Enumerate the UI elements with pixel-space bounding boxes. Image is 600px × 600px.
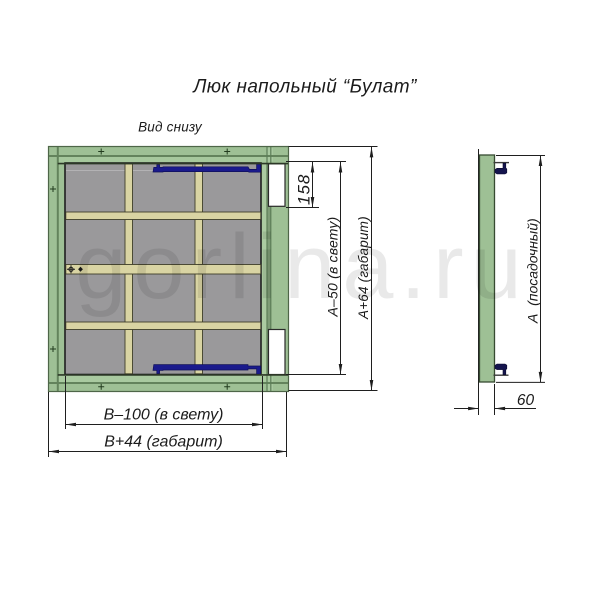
svg-text:В+44 (габарит): В+44 (габарит) [104,434,223,451]
svg-text:В–100 (в свету): В–100 (в свету) [104,407,224,424]
svg-text:158: 158 [295,174,314,205]
svg-text:Вид снизу: Вид снизу [138,120,203,135]
svg-text:gorlina.ru: gorlina.ru [75,216,529,318]
svg-text:Люк напольный “Булат”: Люк напольный “Булат” [191,77,418,98]
svg-text:60: 60 [517,392,535,409]
